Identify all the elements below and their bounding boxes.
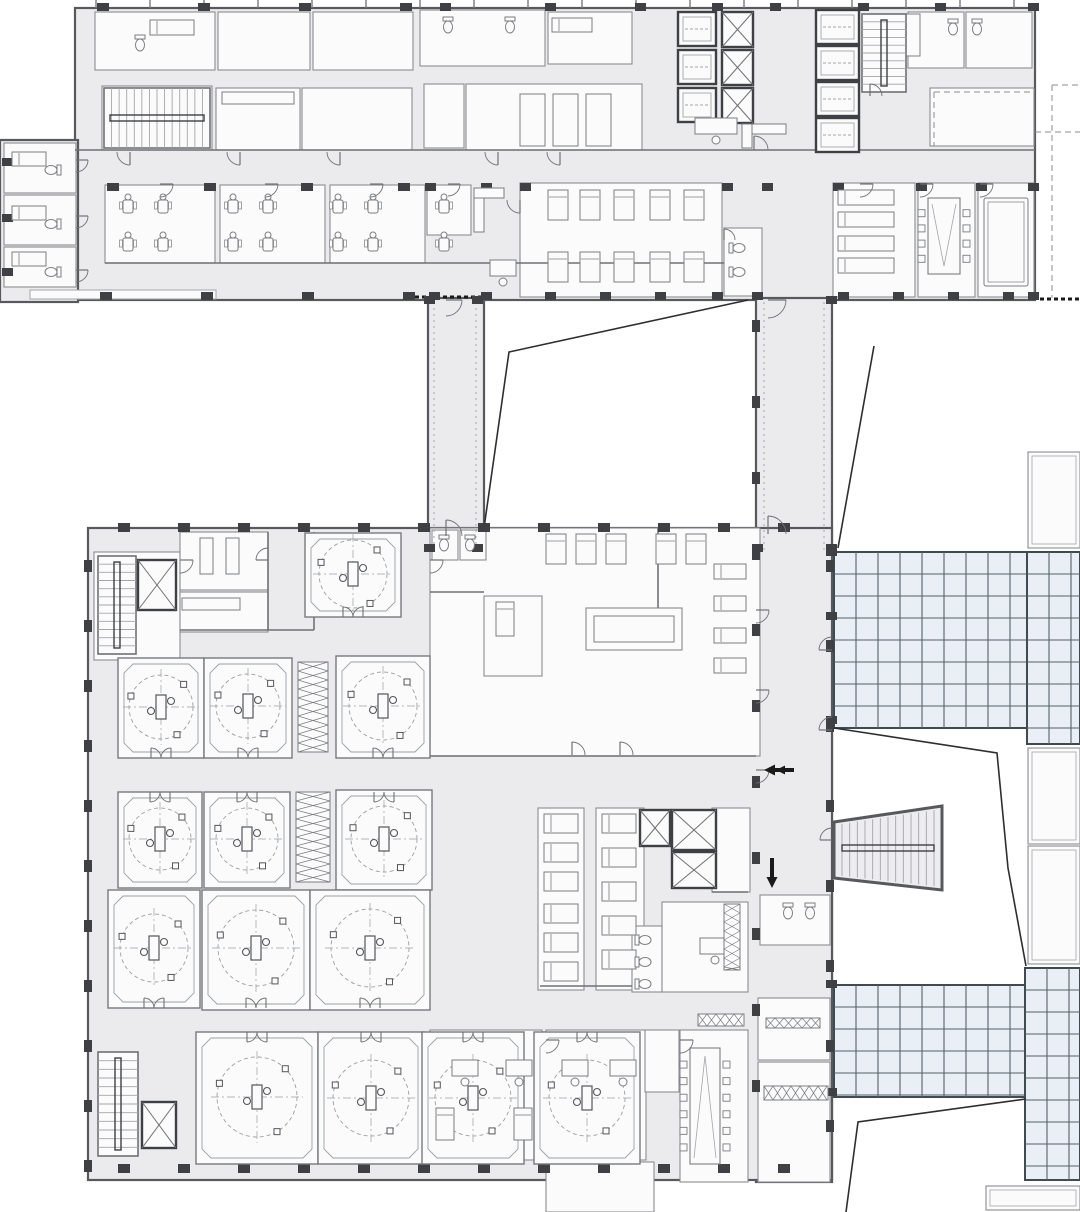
meeting-chair-icon [680, 1111, 687, 1118]
or-equipment-dot [374, 547, 380, 553]
column [826, 1040, 834, 1052]
meeting-chair-icon [918, 225, 925, 232]
column [425, 183, 436, 191]
skylight-grid [1027, 552, 1080, 744]
column [658, 523, 670, 532]
column [826, 980, 837, 988]
column [418, 1164, 430, 1173]
column [1028, 183, 1039, 191]
operating-table-icon [365, 936, 375, 960]
bed-icon [714, 564, 746, 579]
column [2, 214, 13, 222]
desk-icon [695, 118, 737, 134]
counter-icon [182, 598, 240, 610]
column [520, 183, 531, 191]
column [2, 158, 13, 166]
toilet-icon [783, 903, 793, 919]
operating-table-icon [243, 694, 253, 718]
meeting-chair-icon [723, 1144, 730, 1151]
operating-table-icon [468, 1086, 478, 1110]
operating-table-icon [366, 1086, 376, 1110]
counter-icon [222, 92, 294, 104]
or-equipment-dot [404, 813, 410, 819]
column [84, 860, 92, 872]
bed-icon [12, 206, 46, 220]
column [204, 183, 216, 191]
column [545, 292, 556, 300]
or-equipment-dot [260, 863, 266, 869]
column [838, 292, 849, 300]
column [118, 1164, 130, 1173]
counter-icon [200, 538, 213, 574]
toilet-icon [635, 979, 651, 989]
column [752, 396, 760, 408]
bed-icon [838, 236, 894, 251]
column [301, 183, 313, 191]
column [84, 920, 92, 932]
column [538, 523, 550, 532]
column [440, 3, 451, 11]
room [313, 12, 413, 70]
room [420, 10, 545, 66]
room-outline [1028, 846, 1080, 964]
bed-icon [684, 252, 704, 282]
bed-icon [580, 252, 600, 282]
meeting-chair-icon [963, 240, 970, 247]
column [107, 183, 119, 191]
or-equipment-dot [261, 731, 267, 737]
or-equipment-dot [332, 1082, 338, 1088]
room [724, 228, 762, 296]
column [358, 1164, 370, 1173]
operating-table-icon [378, 694, 388, 718]
bed-icon [544, 933, 578, 952]
column [97, 3, 109, 11]
bed-icon [546, 534, 566, 564]
counter-icon [594, 616, 674, 642]
or-equipment-dot [215, 692, 221, 698]
supply-rack-icon [724, 904, 740, 970]
desk-chair-icon [515, 1078, 523, 1086]
operating-table-icon [149, 936, 159, 960]
bed-icon [838, 212, 894, 227]
column [826, 960, 834, 972]
column [722, 183, 733, 191]
column [84, 1100, 92, 1112]
or-equipment-dot [216, 1080, 222, 1086]
bed-icon [602, 814, 636, 833]
operating-table-icon [156, 695, 166, 719]
toilet-icon [635, 957, 651, 967]
column [826, 1120, 834, 1132]
column [84, 560, 92, 572]
or-equipment-dot [404, 679, 410, 685]
or-equipment-dot [387, 1128, 393, 1134]
column [1003, 292, 1014, 300]
or-equipment-dot [181, 681, 187, 687]
toilet-icon [972, 19, 982, 35]
desk-chair-icon [712, 136, 720, 144]
toilet-icon [635, 935, 651, 945]
column [298, 1164, 310, 1173]
or-equipment-dot [395, 1068, 401, 1074]
bed-icon [686, 534, 706, 564]
bed-icon [684, 190, 704, 220]
room-outline [986, 1186, 1080, 1210]
bed-icon [602, 882, 636, 901]
or-equipment-dot [280, 918, 286, 924]
or-equipment-dot [268, 680, 274, 686]
column [752, 1004, 760, 1016]
desk-chair-icon [461, 1078, 469, 1086]
meeting-chair-icon [918, 240, 925, 247]
bed-icon [544, 872, 578, 891]
bed-icon [714, 658, 746, 673]
column [1028, 3, 1039, 11]
bed-icon [580, 190, 600, 220]
or-equipment-dot [489, 1128, 495, 1134]
toilet-icon [948, 19, 958, 35]
bed-icon [544, 843, 578, 862]
operating-table-icon [582, 1086, 592, 1110]
column [398, 183, 410, 191]
column [238, 1164, 250, 1173]
column [424, 544, 435, 552]
skylight-grid [834, 985, 1025, 1097]
bed-icon [602, 950, 636, 969]
column [100, 292, 112, 300]
column [84, 980, 92, 992]
bed-icon [12, 252, 46, 266]
meeting-chair-icon [918, 255, 925, 262]
or-equipment-dot [174, 732, 180, 738]
bed-icon [436, 1108, 454, 1140]
desk-icon [610, 1060, 636, 1076]
column [238, 523, 250, 532]
counter-icon [226, 538, 239, 574]
column [935, 3, 946, 11]
column [655, 292, 666, 300]
or-equipment-dot [397, 732, 403, 738]
room [645, 1030, 679, 1092]
column [418, 523, 430, 532]
toilet-icon [443, 17, 453, 33]
or-equipment-dot [330, 932, 336, 938]
bed-icon [614, 190, 634, 220]
column [752, 852, 760, 864]
column [752, 472, 760, 484]
bed-icon [838, 190, 894, 205]
or-equipment-dot [497, 1068, 503, 1074]
room [760, 895, 830, 945]
operating-table-icon [348, 562, 358, 586]
column [712, 292, 723, 300]
meeting-chair-icon [680, 1078, 687, 1085]
column [478, 523, 490, 532]
toilet-icon [45, 219, 61, 229]
or-equipment-dot [348, 691, 354, 697]
column [826, 296, 837, 304]
column [752, 1080, 760, 1092]
column [778, 1164, 790, 1173]
toilet-icon [505, 17, 515, 33]
supply-rack-icon [698, 1014, 744, 1026]
bed-icon [576, 534, 596, 564]
desk-chair-icon [711, 956, 719, 964]
or-equipment-dot [217, 932, 223, 938]
bed-icon [552, 18, 592, 32]
counter-icon [742, 124, 752, 148]
bed-icon [544, 962, 578, 981]
operating-table-icon [379, 827, 389, 851]
or-equipment-dot [179, 814, 185, 820]
or-equipment-dot [128, 825, 134, 831]
bed-icon [838, 258, 894, 273]
column [752, 624, 760, 636]
column [424, 296, 435, 304]
column [84, 800, 92, 812]
bed-icon [602, 916, 636, 935]
or-equipment-dot [548, 1082, 554, 1088]
column [1028, 292, 1039, 300]
meeting-chair-icon [723, 1111, 730, 1118]
or-equipment-dot [387, 979, 393, 985]
meeting-chair-icon [723, 1127, 730, 1134]
column [598, 523, 610, 532]
column [718, 523, 730, 532]
toilet-icon [135, 35, 145, 51]
column [762, 183, 773, 191]
canopy-edge-line [838, 346, 874, 548]
meeting-chair-icon [680, 1094, 687, 1101]
column [752, 776, 760, 788]
toilet-icon [45, 267, 61, 277]
column [752, 928, 760, 940]
meeting-chair-icon [723, 1061, 730, 1068]
floor-plan [0, 0, 1080, 1212]
column [752, 544, 763, 552]
bed-icon [714, 628, 746, 643]
column [358, 523, 370, 532]
column [84, 1160, 92, 1172]
meeting-chair-icon [723, 1078, 730, 1085]
column [545, 3, 556, 11]
or-equipment-dot [434, 1082, 440, 1088]
counter-icon [586, 94, 611, 146]
column [84, 680, 92, 692]
room [302, 88, 412, 150]
or-equipment-dot [168, 974, 174, 980]
bed-icon [650, 252, 670, 282]
room [330, 185, 425, 263]
or-equipment-dot [272, 978, 278, 984]
room [4, 143, 76, 193]
or-equipment-dot [215, 825, 221, 831]
counter-icon [553, 94, 578, 146]
meeting-chair-icon [680, 1127, 687, 1134]
bed-icon [12, 152, 46, 166]
column [635, 3, 646, 11]
room-outline [1028, 452, 1080, 548]
or-equipment-dot [175, 921, 181, 927]
room [424, 84, 464, 148]
bed-icon [544, 904, 578, 923]
column [2, 268, 13, 276]
column [84, 620, 92, 632]
desk-icon [490, 260, 516, 276]
column [198, 3, 210, 11]
column [299, 3, 311, 11]
column [403, 292, 415, 300]
column [893, 292, 904, 300]
column [538, 1164, 550, 1173]
bed-icon [548, 190, 568, 220]
bed-icon [514, 1108, 532, 1140]
meeting-chair-icon [918, 210, 925, 217]
or-equipment-dot [350, 825, 356, 831]
column [826, 560, 834, 572]
bed-icon [496, 602, 514, 636]
room [758, 998, 830, 1060]
bed-icon [602, 848, 636, 867]
or-equipment-dot [282, 1066, 288, 1072]
column [302, 292, 314, 300]
or-equipment-dot [173, 863, 179, 869]
bed-icon [714, 596, 746, 611]
column [826, 880, 834, 892]
column [826, 548, 837, 556]
floor-slab [428, 298, 484, 556]
counter-icon [520, 94, 545, 146]
column [598, 1164, 610, 1173]
desk-icon [452, 1060, 478, 1076]
column [478, 1164, 490, 1173]
column [84, 740, 92, 752]
bed-icon [606, 534, 626, 564]
column [752, 700, 760, 712]
column [948, 292, 959, 300]
or-equipment-dot [398, 865, 404, 871]
or-equipment-dot [119, 933, 125, 939]
bed-icon [544, 814, 578, 833]
toilet-icon [439, 535, 449, 551]
column [718, 1164, 730, 1173]
column [712, 3, 723, 11]
column [826, 800, 834, 812]
couch-icon [984, 198, 1028, 286]
room [930, 88, 1034, 146]
room [218, 12, 310, 70]
column [752, 292, 763, 300]
column [201, 292, 213, 300]
toilet-icon [729, 267, 745, 277]
meeting-chair-icon [680, 1061, 687, 1068]
column [178, 1164, 190, 1173]
meeting-chair-icon [963, 255, 970, 262]
meeting-table [690, 1048, 720, 1164]
column [84, 1040, 92, 1052]
column [472, 296, 483, 304]
toilet-icon [729, 243, 745, 253]
operating-table-icon [251, 936, 261, 960]
operating-table-icon [252, 1085, 262, 1109]
column [178, 523, 190, 532]
column [752, 320, 760, 332]
meeting-chair-icon [963, 225, 970, 232]
column [658, 1164, 670, 1173]
toilet-icon [465, 535, 475, 551]
room [712, 808, 750, 892]
or-equipment-dot [395, 917, 401, 923]
bed-icon [548, 252, 568, 282]
column [400, 3, 412, 11]
meeting-chair-icon [963, 210, 970, 217]
room-outline [1028, 748, 1080, 844]
or-equipment-dot [603, 1128, 609, 1134]
exterior-walkway [30, 290, 216, 299]
or-equipment-dot [266, 814, 272, 820]
skylight-grid [1025, 968, 1080, 1180]
column [118, 523, 130, 532]
bed-icon [614, 252, 634, 282]
column [778, 523, 790, 532]
operating-table-icon [155, 827, 165, 851]
column [600, 292, 611, 300]
column [770, 3, 781, 11]
or-equipment-dot [274, 1129, 280, 1135]
counter-icon [474, 188, 504, 198]
desk-icon [506, 1060, 532, 1076]
canopy-edge-line [484, 300, 748, 528]
toilet-icon [805, 903, 815, 919]
bed-icon [650, 190, 670, 220]
operating-table-icon [242, 827, 252, 851]
toilet-icon [45, 165, 61, 175]
desk-chair-icon [619, 1078, 627, 1086]
bed-icon [656, 534, 676, 564]
or-equipment-dot [318, 559, 324, 565]
supply-rack-icon [764, 1086, 828, 1100]
floor-plan-canvas [0, 0, 1080, 1212]
desk-chair-icon [499, 278, 507, 286]
meeting-chair-icon [723, 1094, 730, 1101]
column [826, 612, 837, 620]
desk-icon [562, 1060, 588, 1076]
room [758, 1062, 830, 1182]
or-equipment-dot [367, 600, 373, 606]
or-equipment-dot [128, 693, 134, 699]
meeting-chair-icon [680, 1144, 687, 1151]
desk-chair-icon [571, 1078, 579, 1086]
column [298, 523, 310, 532]
